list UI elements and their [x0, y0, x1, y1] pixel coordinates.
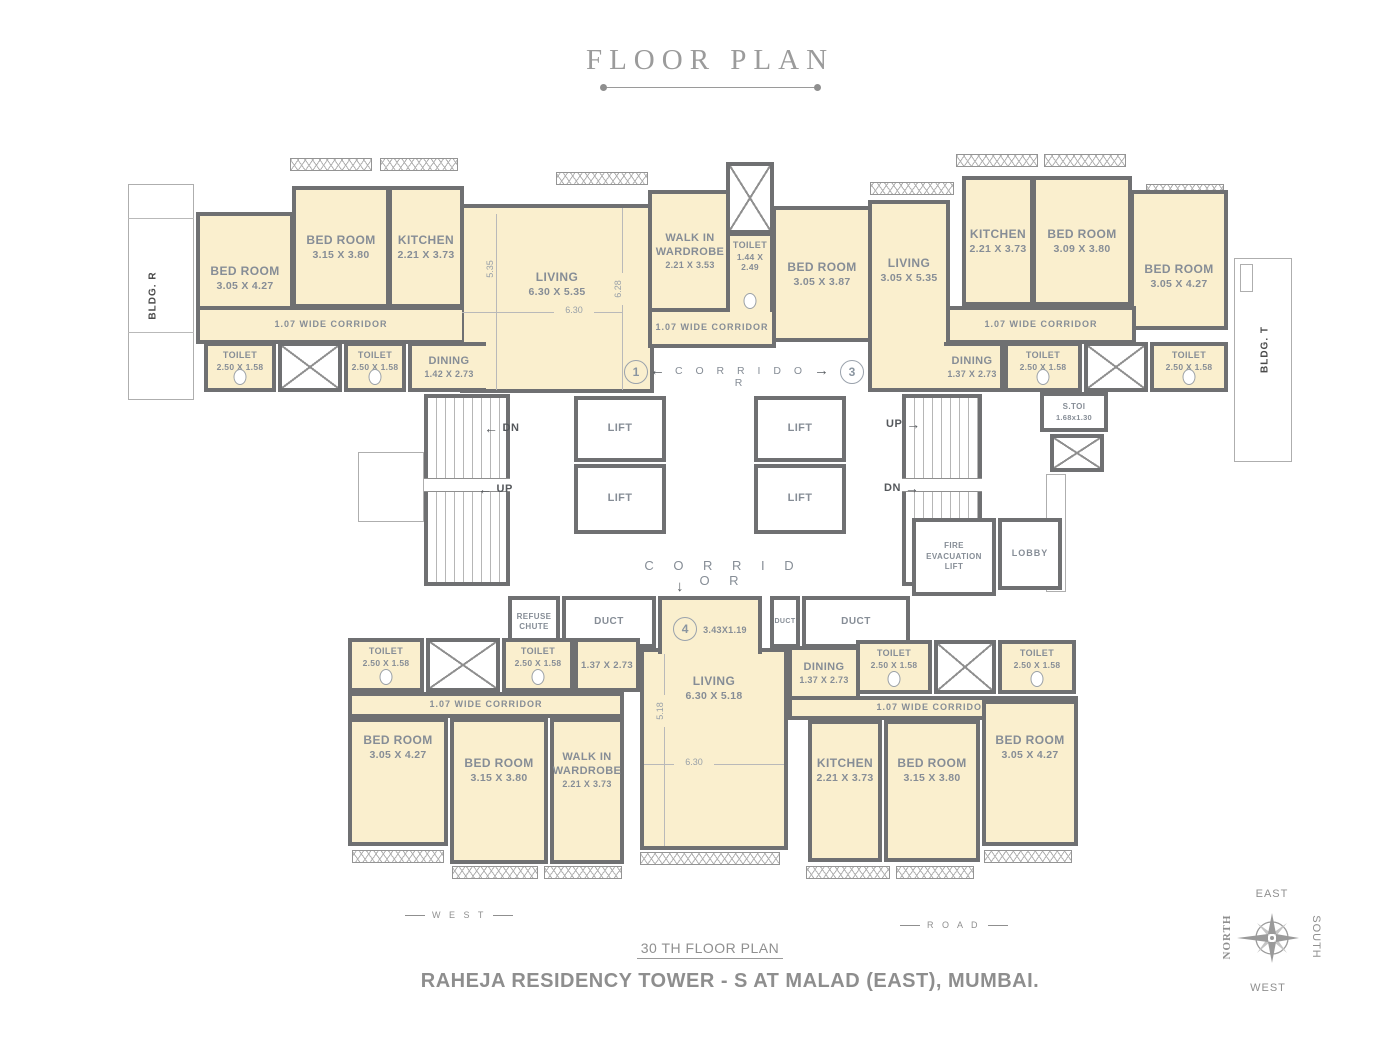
- room-dining: DINING 1.37 X 2.73: [788, 646, 860, 700]
- window-hatch: [984, 850, 1072, 863]
- floor-number-label: 30 TH FLOOR PLAN: [600, 940, 820, 958]
- room-bedroom: BED ROOM 3.15 X 3.80: [292, 186, 390, 308]
- corridor-strip: 1.07 WIDE CORRIDOR: [196, 306, 462, 344]
- dim-line: [664, 654, 665, 846]
- west-marker: W E S T: [405, 910, 513, 920]
- room-kitchen: KITCHEN 2.21 X 3.73: [962, 176, 1034, 306]
- bldg-r-label: BLDG. R: [148, 266, 159, 326]
- room-bedroom: BED ROOM 3.05 X 4.27: [1130, 190, 1228, 330]
- bldg-r-line: [128, 218, 194, 219]
- lift: LIFT: [574, 464, 666, 534]
- balcony-outline: [358, 452, 424, 522]
- dim-label: 6.30: [674, 757, 714, 767]
- title-underline: [604, 87, 816, 88]
- dim-label: 6.30: [554, 305, 594, 315]
- lift-shaft-hatch: [278, 342, 342, 392]
- room-bedroom: BED ROOM 3.15 X 3.80: [884, 720, 980, 862]
- corridor-label-top: C O R R I D O R: [668, 365, 814, 389]
- room-bedroom: BED ROOM 3.05 X 4.27: [982, 700, 1078, 846]
- compass-south-label: SOUTH: [1310, 907, 1322, 967]
- room-toilet: TOILET 2.50 X 1.58: [856, 640, 932, 694]
- duct: DUCT: [770, 596, 800, 648]
- corridor-strip: 1.07 WIDE CORRIDOR: [648, 312, 776, 348]
- window-hatch: [640, 852, 780, 865]
- room-walkin-wardrobe: WALK IN WARDROBE 2.21 X 3.53: [648, 190, 732, 312]
- window-hatch: [380, 158, 458, 171]
- stairs-up-label: UP →: [886, 416, 921, 432]
- duct-shaft-hatch: [726, 162, 774, 234]
- title-dot-left: [600, 84, 607, 91]
- project-title: RAHEJA RESIDENCY TOWER - S AT MALAD (EAS…: [380, 970, 1080, 993]
- room-living: LIVING 3.05 X 5.35: [868, 200, 950, 392]
- window-hatch: [352, 850, 444, 863]
- window-hatch: [896, 866, 974, 879]
- room-toilet: TOILET 2.50 X 1.58: [344, 342, 406, 392]
- dim-line: [644, 764, 784, 765]
- duct-shaft-hatch: [1050, 434, 1104, 472]
- compass-north-label: NORTH: [1221, 907, 1233, 967]
- page-title: FLOOR PLAN: [520, 44, 900, 77]
- wc-icon: [744, 293, 757, 309]
- dim-line: [462, 312, 622, 313]
- bldg-r-line: [128, 332, 194, 333]
- window-hatch: [452, 866, 538, 879]
- corridor-arrow-down: ↓: [676, 578, 684, 595]
- lift: LIFT: [754, 396, 846, 462]
- dim-line: [496, 214, 497, 390]
- floor-plan-canvas: FLOOR PLAN BLDG. R BLDG. T BED ROOM 3.05…: [0, 0, 1400, 1050]
- corridor-arrow-left: ←: [650, 362, 665, 379]
- title-dot-right: [814, 84, 821, 91]
- entry-foyer: 4 3.43X1.19: [658, 596, 762, 654]
- compass-west-label: WEST: [1238, 982, 1298, 994]
- room-toilet: TOILET 1.44 X 2.49: [726, 232, 774, 316]
- fire-evacuation-lift: FIRE EVACUATION LIFT: [912, 518, 996, 596]
- arrow-left-icon: ←: [478, 481, 493, 497]
- window-hatch: [956, 154, 1038, 167]
- room-toilet: TOILET 2.50 X 1.58: [998, 640, 1076, 694]
- unit-badge-3: 3: [840, 360, 864, 384]
- room-toilet: TOILET 2.50 X 1.58: [1150, 342, 1228, 392]
- corridor-arrow-right: →: [814, 362, 829, 379]
- room-bedroom: BED ROOM 3.09 X 3.80: [1032, 176, 1132, 306]
- wc-icon: [888, 671, 901, 687]
- corridor-strip: 1.07 WIDE CORRIDOR: [348, 692, 624, 718]
- room-bedroom: BED ROOM 3.05 X 4.27: [348, 718, 448, 846]
- wc-icon: [532, 669, 545, 685]
- room-toilet: TOILET 2.50 X 1.58: [1004, 342, 1082, 392]
- corridor-strip: 1.07 WIDE CORRIDOR: [950, 306, 1136, 344]
- wc-icon: [234, 369, 247, 385]
- unit-badge-1: 1: [624, 360, 648, 384]
- compass-east-label: EAST: [1242, 888, 1302, 900]
- lobby: LOBBY: [998, 518, 1062, 590]
- dim-label: 5.35: [485, 253, 495, 285]
- arrow-right-icon: →: [906, 416, 921, 432]
- arrow-right-icon: →: [905, 480, 920, 496]
- room-bedroom: BED ROOM 3.15 X 3.80: [450, 718, 548, 864]
- wc-icon: [369, 369, 382, 385]
- room-dining: 1.37 X 2.73: [574, 638, 640, 692]
- wc-icon: [380, 669, 393, 685]
- room-toilet: TOILET 2.50 X 1.58: [502, 638, 574, 692]
- lift-shaft-hatch: [934, 640, 996, 694]
- bldg-t-label: BLDG. T: [1260, 320, 1271, 380]
- room-walkin-wardrobe: WALK IN WARDROBE 2.21 X 3.73: [550, 718, 624, 864]
- room-dining: DINING 1.42 X 2.73: [408, 342, 486, 392]
- room-toilet: TOILET 2.50 X 1.58: [348, 638, 424, 692]
- stairs-up-label: ← UP: [478, 481, 513, 497]
- stairs-dn-label: ← DN: [484, 420, 519, 436]
- adjacent-bldg-r-outline: [128, 184, 194, 400]
- lift: LIFT: [574, 396, 666, 462]
- dim-label: 6.28: [613, 273, 623, 305]
- window-hatch: [806, 866, 890, 879]
- road-marker: R O A D: [900, 920, 1008, 930]
- window-hatch: [1044, 154, 1126, 167]
- unit-badge-4: 4: [673, 617, 697, 641]
- room-kitchen: KITCHEN 2.21 X 3.73: [808, 720, 882, 862]
- window-hatch: [870, 182, 954, 195]
- compass-rose-icon: [1237, 903, 1307, 973]
- window-hatch: [556, 172, 648, 185]
- room-dining: DINING 1.37 X 2.73: [944, 342, 1004, 392]
- arrow-left-icon: ←: [484, 420, 499, 436]
- wc-icon: [1183, 369, 1196, 385]
- service-toilet: S.TOI 1.68x1.30: [1040, 392, 1108, 432]
- room-bedroom: BED ROOM 3.05 X 3.87: [772, 206, 872, 342]
- lift-shaft-hatch: [1084, 342, 1148, 392]
- bldg-t-detail: [1240, 264, 1253, 292]
- lift: LIFT: [754, 464, 846, 534]
- wc-icon: [1031, 671, 1044, 687]
- stairs-dn-label: DN →: [884, 480, 919, 496]
- dim-label: 5.18: [655, 695, 665, 727]
- wc-icon: [1037, 369, 1050, 385]
- window-hatch: [290, 158, 372, 171]
- lift-shaft-hatch: [426, 638, 500, 692]
- corridor-label-main: C O R R I D O R: [630, 558, 816, 588]
- room-living: LIVING 6.30 X 5.18: [640, 648, 788, 850]
- room-toilet: TOILET 2.50 X 1.58: [204, 342, 276, 392]
- window-hatch: [544, 866, 622, 879]
- room-kitchen: KITCHEN 2.21 X 3.73: [388, 186, 464, 308]
